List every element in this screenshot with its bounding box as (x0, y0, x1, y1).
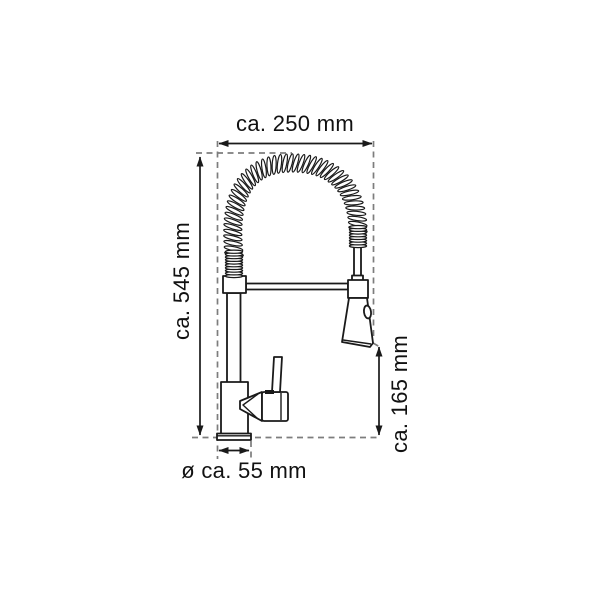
dim-label-height-left: ca. 545 mm (170, 222, 194, 340)
riser-top-block (223, 276, 246, 293)
drawing-area: ca. 250 mm ca. 545 mm ca. 165 mm ø ca. 5… (0, 0, 600, 600)
lever-stick (272, 357, 282, 392)
faucet-figure (217, 153, 373, 440)
faucet-technical-drawing (0, 0, 600, 600)
spray-hose-tube (354, 243, 361, 278)
handle-housing (262, 392, 288, 421)
dim-label-width: ca. 250 mm (217, 112, 373, 136)
dim-label-height-right: ca. 165 mm (388, 335, 412, 453)
spray-head (342, 243, 373, 347)
lever-base-cap (265, 390, 274, 394)
spring-left-tight-coil (225, 250, 242, 278)
spring-arch (223, 153, 367, 257)
spout-support-bar (246, 284, 348, 290)
base-flange (217, 434, 251, 441)
dim-label-base-diameter: ø ca. 55 mm (154, 459, 334, 483)
extension-tick-spray-tip (373, 343, 380, 347)
riser-pipe (227, 293, 241, 383)
spring-right-tight-coil (349, 226, 366, 248)
spring-spout (223, 153, 367, 277)
spray-holder-block (348, 280, 368, 298)
